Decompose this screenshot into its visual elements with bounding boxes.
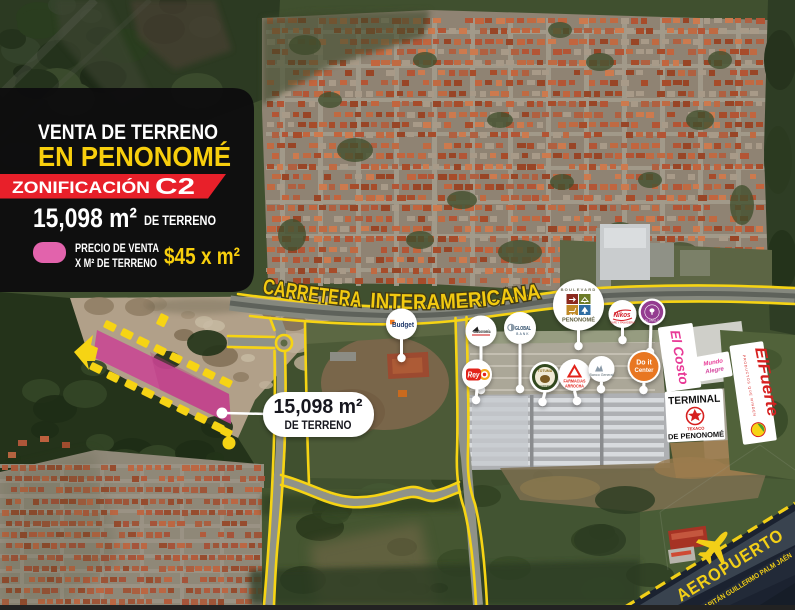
svg-text:15,098 m²: 15,098 m²: [33, 203, 137, 233]
svg-text:ZONIFICACIÓN: ZONIFICACIÓN: [12, 178, 150, 197]
svg-text:Center: Center: [634, 368, 654, 374]
svg-text:Budget: Budget: [392, 320, 414, 329]
svg-text:COFFEE: COFFEE: [540, 384, 551, 388]
svg-text:DE TERRENO: DE TERRENO: [285, 420, 352, 432]
svg-text:Banco General: Banco General: [590, 373, 614, 377]
svg-text:DE TERRENO: DE TERRENO: [144, 213, 216, 228]
svg-text:Do it: Do it: [636, 360, 652, 367]
svg-text:Nikos: Nikos: [614, 312, 631, 319]
svg-text:ARROCHA: ARROCHA: [565, 384, 584, 389]
svg-text:EN PENONOMÉ: EN PENONOMÉ: [38, 141, 231, 172]
svg-text:X M² DE TERRENO: X M² DE TERRENO: [75, 256, 157, 270]
svg-text:C2: C2: [155, 173, 195, 199]
svg-text:PRECIO DE VENTA: PRECIO DE VENTA: [75, 241, 159, 255]
svg-text:EL JAVILLO: EL JAVILLO: [645, 319, 659, 323]
svg-text:CAFE Y PANADERIA: CAFE Y PANADERIA: [610, 321, 635, 325]
svg-text:15,098 m²: 15,098 m²: [274, 396, 363, 418]
svg-text:LaEconomia: LaEconomia: [474, 329, 491, 334]
svg-text:BANK: BANK: [516, 332, 529, 336]
svg-text:PENONOMÉ: PENONOMÉ: [562, 316, 595, 324]
svg-text:TOTUMA: TOTUMA: [538, 369, 553, 373]
svg-text:$45 x m²: $45 x m²: [164, 243, 240, 269]
svg-text:BOULEVARD: BOULEVARD: [561, 287, 597, 292]
svg-text:Rey: Rey: [468, 371, 480, 380]
